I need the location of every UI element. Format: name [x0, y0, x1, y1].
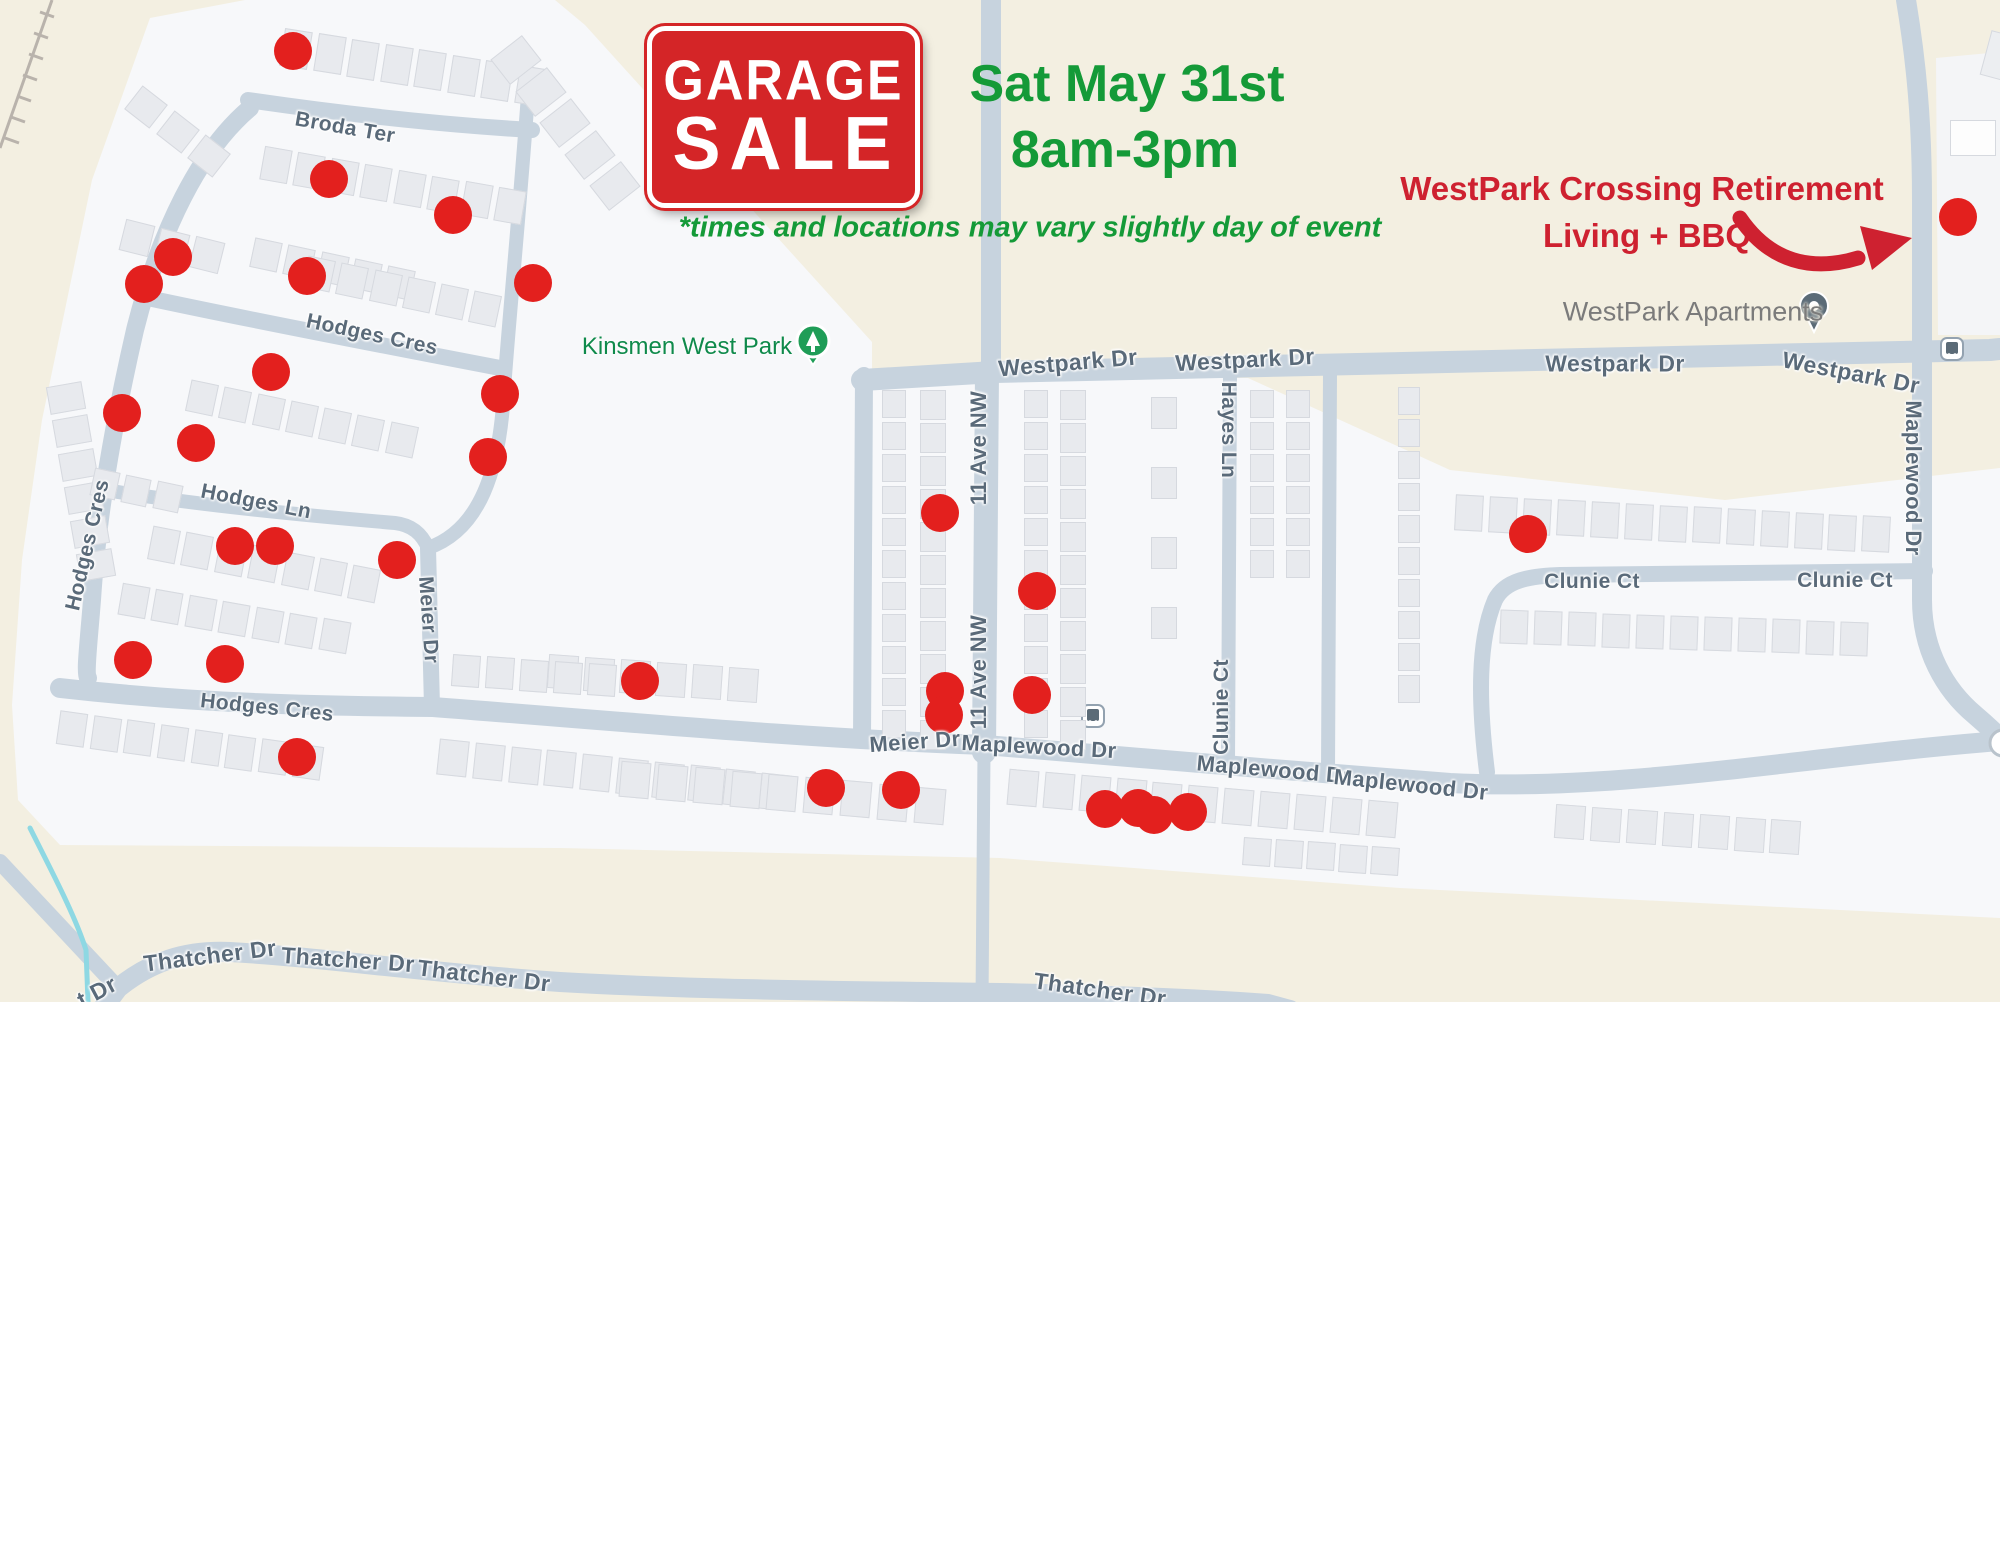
- building-footprint: [1771, 619, 1800, 654]
- building-footprint: [224, 734, 256, 772]
- building-footprint: [1286, 390, 1310, 418]
- building-footprint: [1697, 814, 1729, 850]
- building-footprint: [920, 588, 946, 618]
- event-time: 8am-3pm: [1011, 120, 1239, 180]
- sale-location-dot: [103, 394, 141, 432]
- building-footprint: [1737, 618, 1766, 653]
- building-footprint: [655, 764, 688, 802]
- building-footprint: [882, 486, 906, 514]
- building-footprint: [1286, 486, 1310, 514]
- sign-word-sale: SALE: [672, 106, 900, 182]
- building-footprint: [368, 270, 402, 307]
- building-footprint: [1250, 518, 1274, 546]
- street-name-label: Hayes Ln: [1216, 382, 1240, 479]
- building-footprint: [1950, 120, 1996, 156]
- event-note: *times and locations may vary slightly d…: [679, 212, 1382, 245]
- street-name-label: Clunie Ct: [1544, 570, 1640, 594]
- building-footprint: [1703, 617, 1732, 652]
- building-footprint: [1398, 483, 1420, 511]
- building-footprint: [1286, 550, 1310, 578]
- building-footprint: [1554, 804, 1586, 840]
- building-footprint: [690, 664, 722, 700]
- building-footprint: [89, 715, 121, 753]
- railway-tick: [5, 138, 19, 143]
- street-name-label: Clunie Ct: [1797, 569, 1893, 593]
- street-name-label: 11 Ave NW: [966, 391, 992, 505]
- street-name-label: Westpark Dr: [1545, 351, 1684, 378]
- building-footprint: [1669, 615, 1698, 650]
- building-footprint: [1286, 454, 1310, 482]
- building-footprint: [1398, 579, 1420, 607]
- building-footprint: [519, 659, 549, 693]
- building-footprint: [1258, 791, 1291, 829]
- building-footprint: [1726, 509, 1756, 546]
- building-footprint: [184, 595, 217, 631]
- building-footprint: [1060, 390, 1086, 420]
- residential-area-northeast: [1936, 52, 2000, 335]
- sale-location-dot: [256, 527, 294, 565]
- building-footprint: [1398, 643, 1420, 671]
- building-footprint: [1024, 454, 1048, 482]
- building-footprint: [1060, 423, 1086, 453]
- railway-line: [0, 0, 52, 148]
- building-footprint: [1060, 588, 1086, 618]
- building-footprint: [1454, 494, 1484, 531]
- building-footprint: [1306, 842, 1336, 872]
- building-footprint: [1024, 518, 1048, 546]
- building-footprint: [1590, 806, 1622, 842]
- building-footprint: [1242, 837, 1272, 867]
- building-footprint: [1805, 620, 1834, 655]
- building-footprint: [1862, 516, 1892, 553]
- building-footprint: [1338, 844, 1368, 874]
- building-footprint: [56, 710, 88, 748]
- building-footprint: [882, 678, 906, 706]
- building-footprint: [1626, 809, 1658, 845]
- building-footprint: [259, 146, 292, 184]
- sale-location-dot: [1509, 515, 1547, 553]
- building-footprint: [1060, 555, 1086, 585]
- sale-location-dot: [807, 769, 845, 807]
- callout-line1: WestPark Crossing Retirement: [1400, 170, 1884, 208]
- building-footprint: [1060, 522, 1086, 552]
- sale-location-dot: [114, 641, 152, 679]
- building-footprint: [726, 667, 758, 703]
- building-footprint: [1398, 547, 1420, 575]
- road-11-ave-nw-south: [982, 752, 984, 1002]
- building-footprint: [1250, 422, 1274, 450]
- building-footprint: [1151, 397, 1177, 429]
- street-name-label: 11 Ave NW: [966, 615, 992, 729]
- building-footprint: [882, 550, 906, 578]
- building-footprint: [1329, 797, 1362, 835]
- building-footprint: [1250, 550, 1274, 578]
- building-footprint: [1533, 611, 1562, 646]
- building-footprint: [882, 582, 906, 610]
- building-footprint: [1635, 614, 1664, 649]
- building-footprint: [882, 646, 906, 674]
- park-tree-trunk: [811, 346, 815, 352]
- sale-location-dot: [481, 375, 519, 413]
- sale-location-dot: [177, 424, 215, 462]
- street-name-label: Maplewood Dr: [1900, 400, 1926, 555]
- building-footprint: [1250, 390, 1274, 418]
- building-footprint: [655, 662, 687, 698]
- sale-location-dot: [469, 438, 507, 476]
- building-footprint: [920, 423, 946, 453]
- railway-tick: [17, 96, 31, 101]
- sale-location-dot: [1135, 796, 1173, 834]
- callout-arrow: [1740, 218, 1858, 264]
- building-footprint: [1024, 614, 1048, 642]
- building-footprint: [729, 770, 762, 808]
- building-footprint: [920, 621, 946, 651]
- sale-location-dot: [154, 238, 192, 276]
- building-footprint: [587, 664, 617, 698]
- building-footprint: [1024, 422, 1048, 450]
- building-footprint: [882, 454, 906, 482]
- building-footprint: [1658, 505, 1688, 542]
- building-footprint: [1151, 607, 1177, 639]
- sale-location-dot: [434, 196, 472, 234]
- building-footprint: [1624, 503, 1654, 540]
- building-footprint: [1398, 515, 1420, 543]
- sale-location-dot: [1018, 572, 1056, 610]
- building-footprint: [447, 55, 481, 97]
- callout-line2: Living + BBQ: [1543, 217, 1751, 255]
- building-footprint: [1060, 489, 1086, 519]
- building-footprint: [451, 654, 481, 688]
- building-footprint: [579, 754, 613, 793]
- building-footprint: [1398, 675, 1420, 703]
- building-footprint: [1060, 621, 1086, 651]
- building-footprint: [1828, 514, 1858, 551]
- building-footprint: [152, 481, 183, 514]
- sale-location-dot: [378, 541, 416, 579]
- building-footprint: [618, 761, 651, 799]
- callout-arrow-head: [1860, 226, 1912, 270]
- building-footprint: [920, 390, 946, 420]
- sale-location-dot: [921, 494, 959, 532]
- sale-location-dot: [310, 160, 348, 198]
- sale-location-dot: [288, 257, 326, 295]
- building-footprint: [251, 606, 284, 642]
- garage-sale-sign: GARAGE SALE: [647, 26, 920, 208]
- building-footprint: [1760, 510, 1790, 547]
- sale-location-dot: [206, 645, 244, 683]
- building-footprint: [157, 724, 189, 762]
- building-footprint: [1286, 422, 1310, 450]
- sale-location-dot: [621, 662, 659, 700]
- building-footprint: [1250, 486, 1274, 514]
- building-footprint: [882, 518, 906, 546]
- sale-location-dot: [1013, 676, 1051, 714]
- building-footprint: [380, 44, 414, 86]
- building-footprint: [1601, 613, 1630, 648]
- building-footprint: [920, 456, 946, 486]
- bus-glyph: [1946, 342, 1958, 354]
- map-area: Broda TerHodges CresHodges CresHodges Ln…: [0, 0, 2000, 1002]
- sale-location-dot: [278, 738, 316, 776]
- building-footprint: [1398, 611, 1420, 639]
- building-footprint: [1692, 507, 1722, 544]
- building-footprint: [1556, 500, 1586, 537]
- building-footprint: [1274, 839, 1304, 869]
- building-footprint: [1365, 800, 1398, 838]
- building-footprint: [1151, 467, 1177, 499]
- building-footprint: [508, 746, 542, 785]
- railway-tick: [11, 117, 25, 122]
- building-footprint: [544, 750, 578, 789]
- building-footprint: [1042, 772, 1075, 810]
- sale-location-dot: [252, 353, 290, 391]
- building-footprint: [393, 169, 426, 207]
- building-footprint: [1398, 419, 1420, 447]
- bus-wheel: [1953, 353, 1957, 357]
- event-date: Sat May 31st: [969, 54, 1284, 114]
- building-footprint: [385, 422, 419, 459]
- building-footprint: [1024, 390, 1048, 418]
- building-footprint: [1250, 454, 1274, 482]
- building-footprint: [553, 661, 583, 695]
- building-footprint: [1060, 654, 1086, 684]
- building-footprint: [1662, 812, 1694, 848]
- building-footprint: [190, 729, 222, 767]
- apartments-label: WestPark Apartments: [1563, 297, 1824, 328]
- building-footprint: [1567, 612, 1596, 647]
- building-footprint: [1024, 646, 1048, 674]
- bus-wheel: [1088, 720, 1092, 724]
- building-footprint: [1839, 621, 1868, 656]
- sale-location-dot: [1169, 793, 1207, 831]
- building-footprint: [123, 720, 155, 758]
- building-footprint: [1024, 486, 1048, 514]
- building-footprint: [485, 656, 515, 690]
- building-footprint: [766, 774, 799, 812]
- building-footprint: [1060, 456, 1086, 486]
- building-footprint: [318, 618, 351, 654]
- bus-glyph: [1087, 709, 1099, 721]
- bus-wheel: [1947, 353, 1951, 357]
- road-clunie-connector: [1328, 374, 1330, 770]
- building-footprint: [1370, 846, 1400, 876]
- sale-location-dot: [216, 527, 254, 565]
- building-footprint: [436, 739, 470, 778]
- building-footprint: [1733, 817, 1765, 853]
- building-footprint: [1398, 451, 1420, 479]
- building-footprint: [882, 614, 906, 642]
- building-footprint: [1286, 518, 1310, 546]
- building-footprint: [920, 555, 946, 585]
- building-footprint: [1006, 769, 1039, 807]
- building-footprint: [1794, 512, 1824, 549]
- building-footprint: [285, 612, 318, 648]
- building-footprint: [882, 390, 906, 418]
- building-footprint: [472, 742, 506, 781]
- road-park-loop: [862, 376, 864, 740]
- sale-location-dot: [125, 265, 163, 303]
- sale-location-dot: [274, 32, 312, 70]
- park-label: Kinsmen West Park: [582, 333, 792, 361]
- sale-location-dot: [514, 264, 552, 302]
- building-footprint: [692, 767, 725, 805]
- building-footprint: [1398, 387, 1420, 415]
- sale-location-dot: [882, 771, 920, 809]
- building-footprint: [1222, 788, 1255, 826]
- building-footprint: [1060, 687, 1086, 717]
- building-footprint: [1293, 794, 1326, 832]
- building-footprint: [117, 583, 150, 619]
- building-footprint: [1590, 501, 1620, 538]
- building-footprint: [1151, 537, 1177, 569]
- building-footprint: [251, 394, 285, 431]
- street-name-label: Clunie Ct: [1210, 659, 1234, 755]
- building-footprint: [1769, 819, 1801, 855]
- building-footprint: [882, 422, 906, 450]
- bus-wheel: [1094, 720, 1098, 724]
- building-footprint: [313, 33, 347, 75]
- building-footprint: [1499, 610, 1528, 645]
- sale-location-dot: [1939, 198, 1977, 236]
- flyer-canvas: Broda TerHodges CresHodges CresHodges Ln…: [0, 0, 2000, 1545]
- building-footprint: [346, 39, 380, 81]
